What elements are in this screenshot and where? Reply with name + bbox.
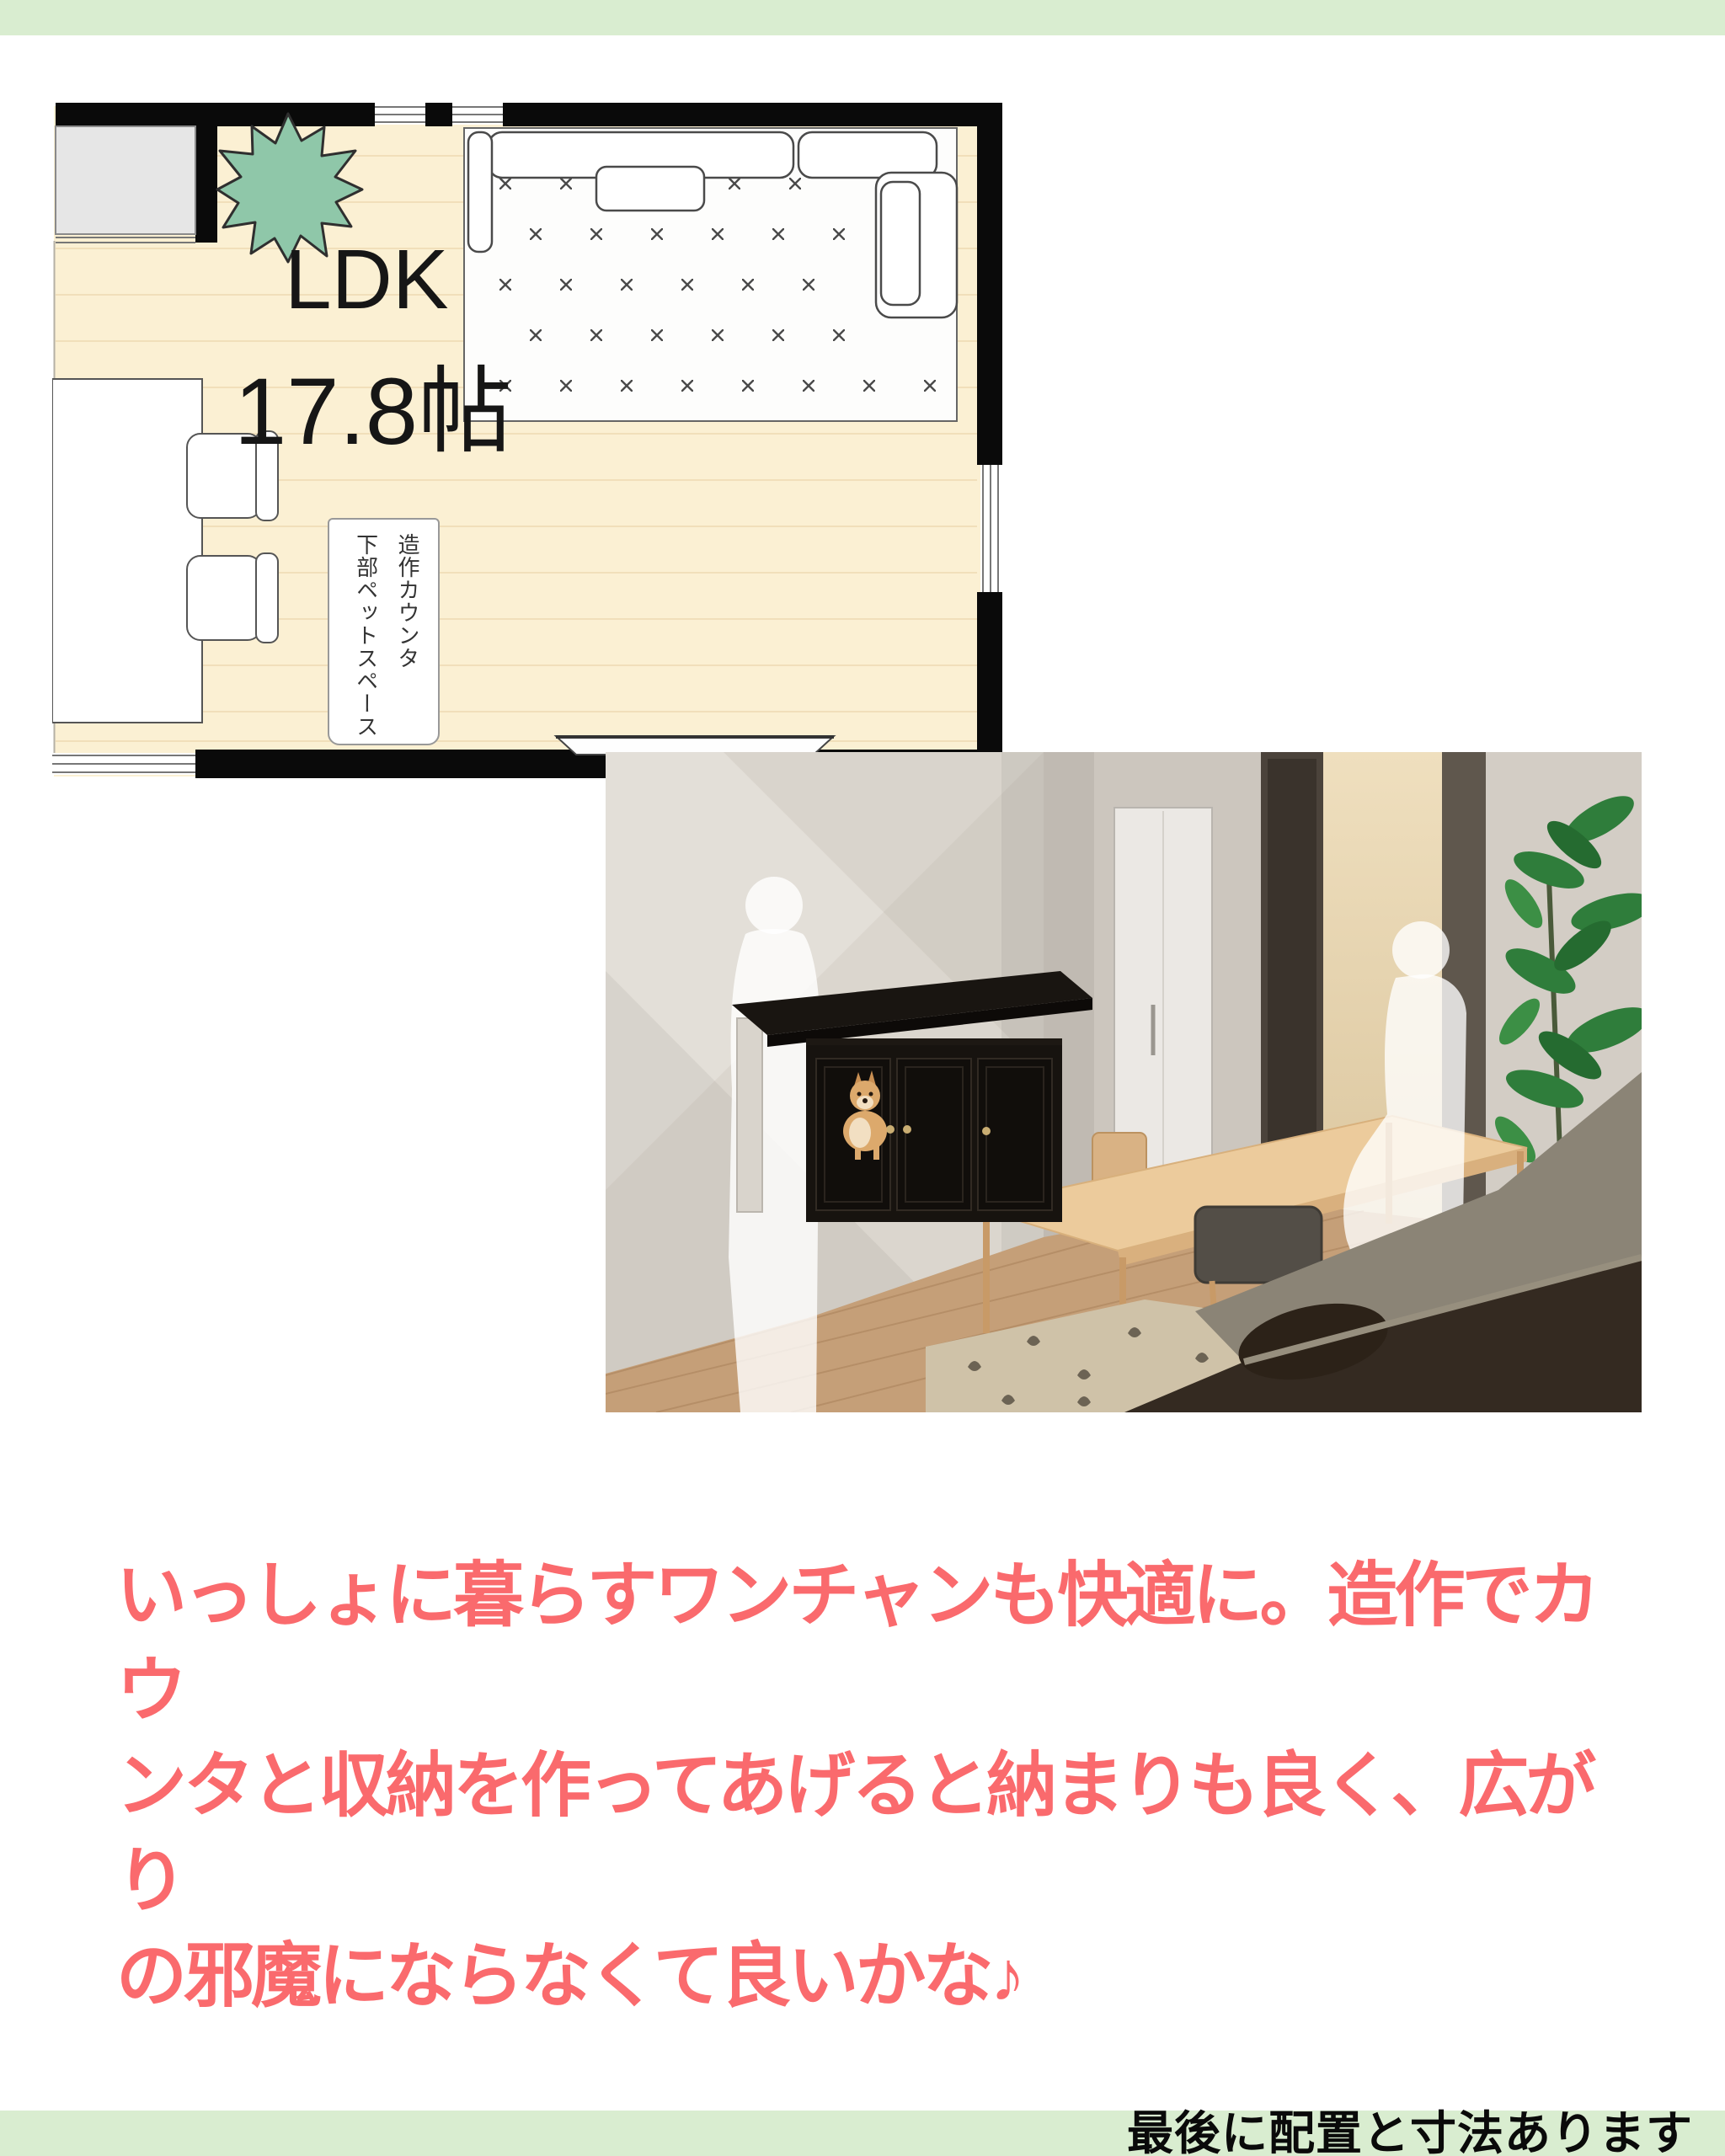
- counter-note-line: 造作カウンタ: [387, 533, 428, 739]
- closet: [56, 126, 195, 243]
- area-label: 17.8帖: [234, 359, 512, 464]
- caption-line: いっしょに暮らすワンチャンも快適に。造作でカウ: [116, 1548, 1641, 1738]
- footer-bar: 最後に配置と寸法あります: [0, 2111, 1725, 2156]
- page: LDK 17.8帖 造作カウンタ 下部ペットスペース: [0, 0, 1725, 2156]
- top-accent-bar: [0, 0, 1725, 35]
- counter-pet-note: 造作カウンタ 下部ペットスペース: [328, 518, 440, 745]
- footer-note: 最後に配置と寸法あります: [1127, 2111, 1725, 2156]
- dining-table: [52, 379, 202, 723]
- dining-chair: [187, 553, 278, 643]
- caption-text: いっしょに暮らすワンチャンも快適に。造作でカウ ンタと収納を作ってあげると納まり…: [116, 1548, 1641, 2024]
- counter-note-line: 下部ペットスペース: [344, 533, 386, 739]
- caption-line: ンタと収納を作ってあげると納まりも良く、広がり: [116, 1738, 1641, 1929]
- floor-plan: LDK 17.8帖: [52, 101, 1004, 785]
- interior-render: [606, 752, 1642, 1412]
- caption-line: の邪魔にならなくて良いかな♪: [116, 1929, 1641, 2024]
- room-label: LDK: [285, 232, 449, 327]
